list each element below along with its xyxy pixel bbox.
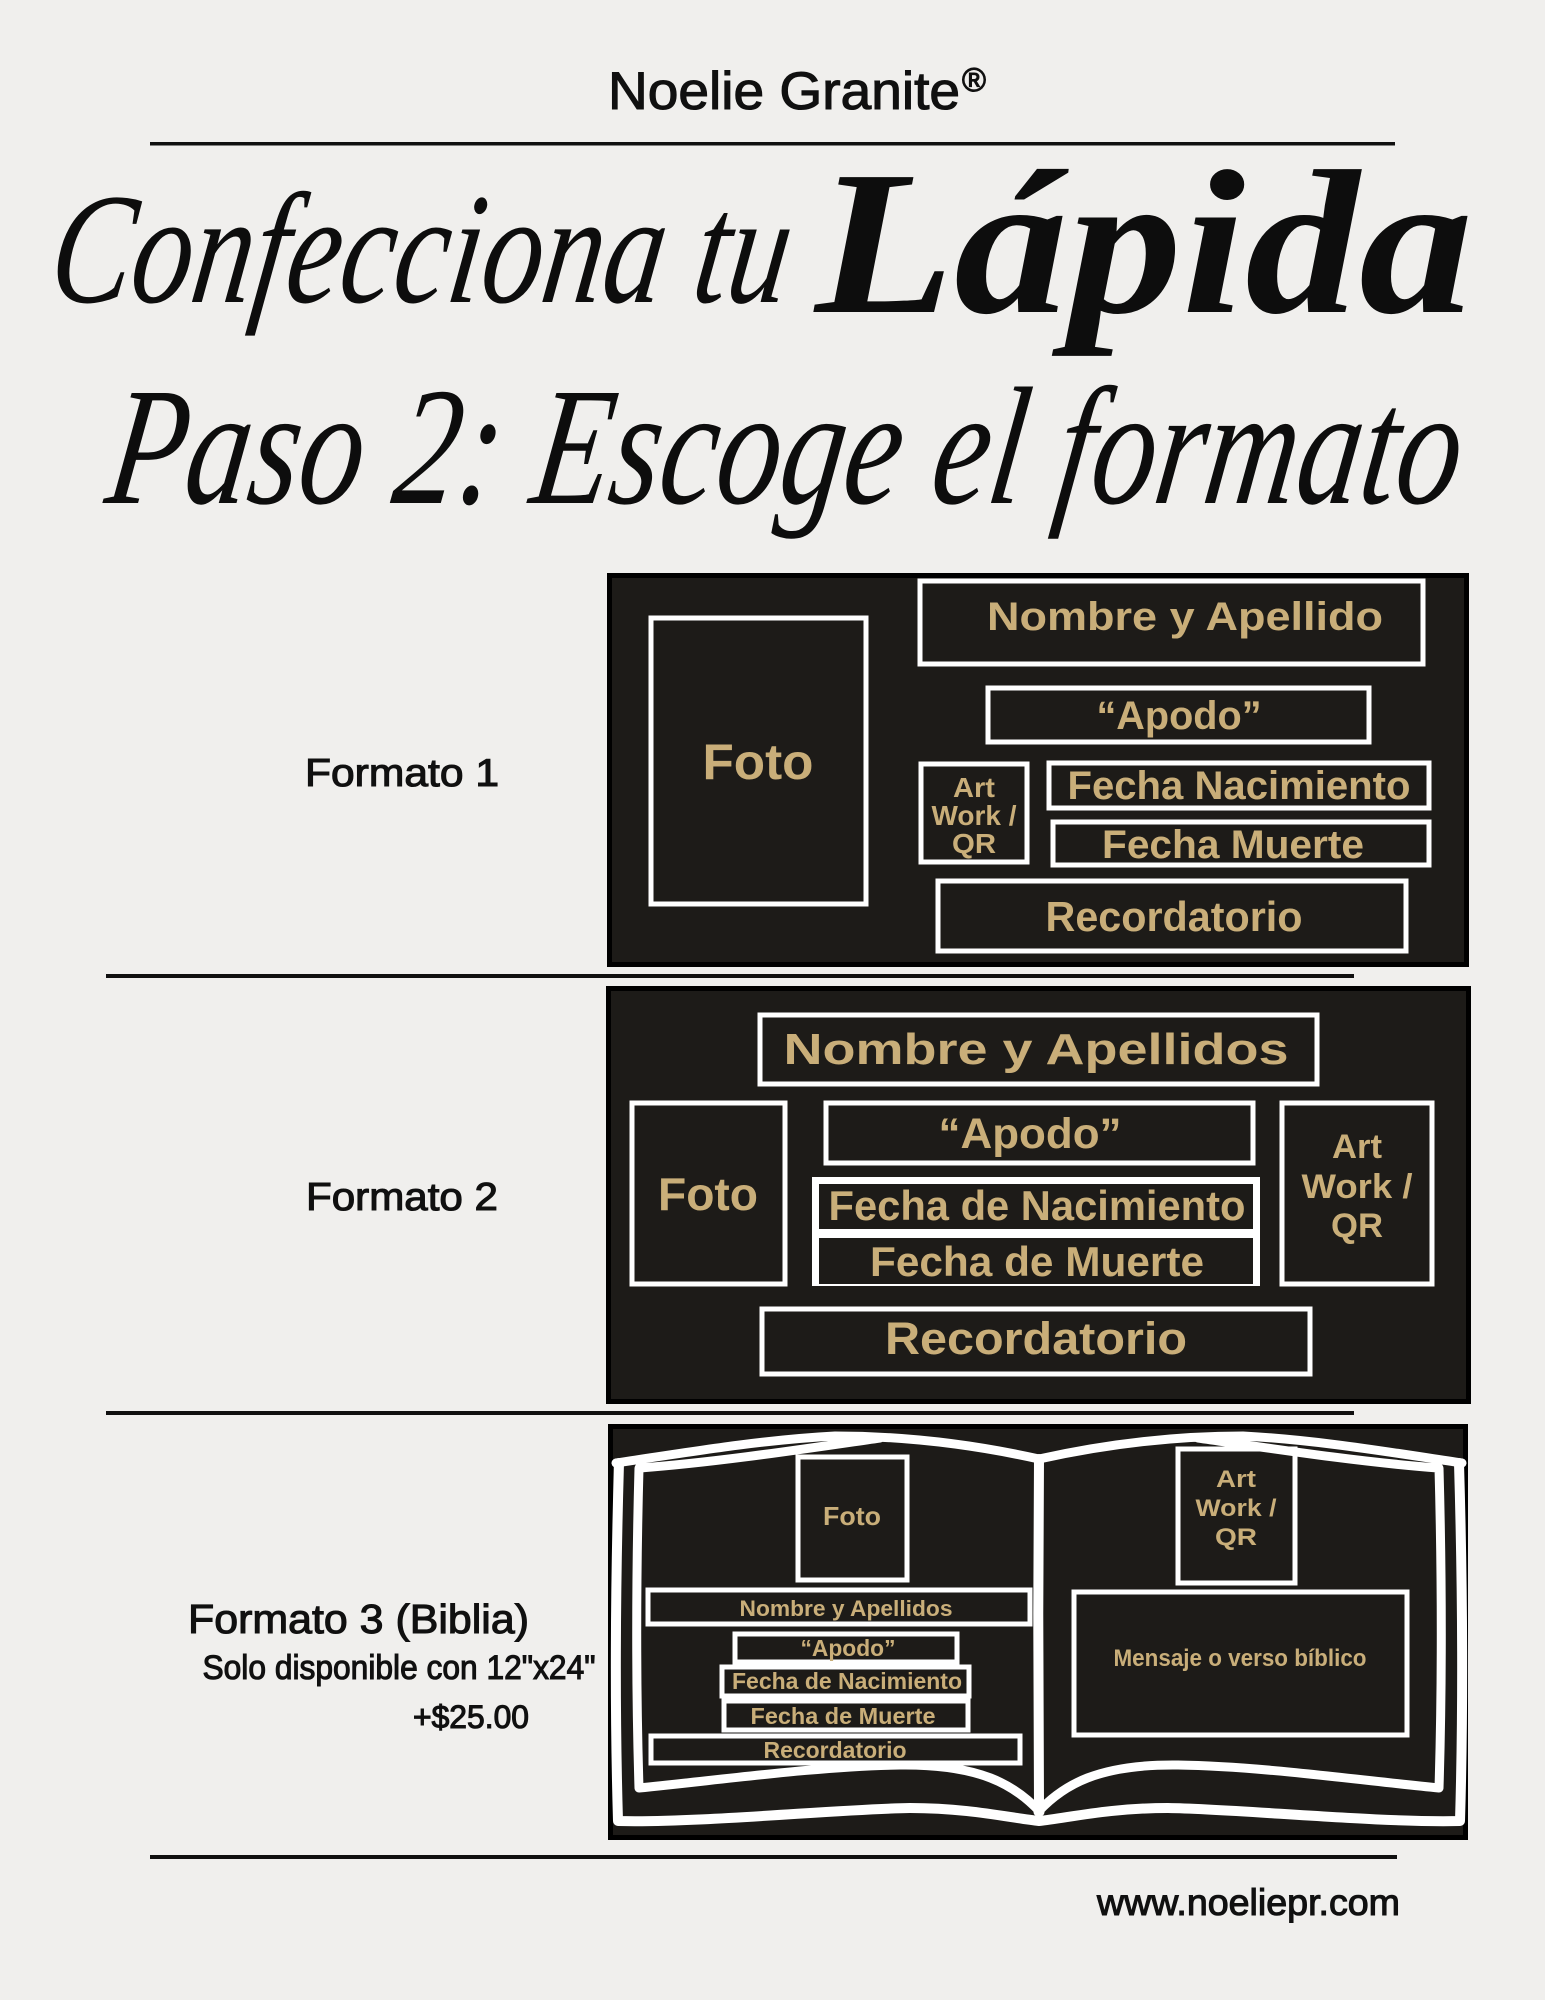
svg-text:Fecha Muerte: Fecha Muerte (1102, 823, 1364, 867)
svg-text:Nombre y Apellido: Nombre y Apellido (987, 595, 1383, 639)
svg-text:Fecha de Nacimiento: Fecha de Nacimiento (732, 1668, 962, 1694)
svg-text:Paso 2: Escoge el formato: Paso 2: Escoge el formato (97, 354, 1476, 540)
svg-text:Work /: Work / (932, 800, 1017, 831)
svg-text:QR: QR (1331, 1207, 1383, 1245)
svg-text:Formato 3 (Biblia): Formato 3 (Biblia) (188, 1596, 529, 1642)
svg-text:Foto: Foto (658, 1168, 758, 1220)
svg-text:Fecha de Muerte: Fecha de Muerte (751, 1703, 936, 1729)
svg-text:Lápida: Lápida (813, 128, 1473, 357)
svg-text:Recordatorio: Recordatorio (764, 1737, 907, 1763)
svg-text:+$25.00: +$25.00 (413, 1699, 529, 1735)
svg-text:“Apodo”: “Apodo” (1097, 694, 1262, 738)
svg-text:QR: QR (952, 828, 996, 859)
svg-text:Fecha Nacimiento: Fecha Nacimiento (1068, 764, 1411, 808)
svg-text:Work /: Work / (1196, 1495, 1277, 1522)
svg-text:Fecha de Muerte: Fecha de Muerte (870, 1238, 1204, 1285)
svg-text:“Apodo”: “Apodo” (939, 1110, 1122, 1158)
svg-text:Foto: Foto (823, 1501, 881, 1531)
svg-text:Recordatorio: Recordatorio (1046, 893, 1303, 940)
svg-text:Art: Art (953, 772, 995, 803)
svg-text:®: ® (962, 61, 986, 98)
svg-text:QR: QR (1215, 1524, 1257, 1551)
svg-text:Confecciona tu: Confecciona tu (41, 163, 803, 337)
svg-text:Fecha de Nacimiento: Fecha de Nacimiento (829, 1182, 1246, 1229)
svg-text:Art: Art (1332, 1128, 1382, 1166)
svg-text:Art: Art (1216, 1466, 1256, 1493)
svg-text:Noelie Granite: Noelie Granite (608, 62, 960, 121)
svg-text:Solo disponible con 12"x24": Solo disponible con 12"x24" (203, 1649, 596, 1687)
svg-text:Formato 1: Formato 1 (305, 752, 499, 795)
svg-text:Foto: Foto (703, 734, 814, 790)
svg-text:Formato 2: Formato 2 (306, 1176, 498, 1219)
svg-text:Mensaje o verso bíblico: Mensaje o verso bíblico (1114, 1645, 1367, 1672)
svg-text:www.noeliepr.com: www.noeliepr.com (1096, 1882, 1400, 1923)
svg-text:“Apodo”: “Apodo” (801, 1635, 896, 1661)
svg-text:Recordatorio: Recordatorio (885, 1313, 1187, 1364)
svg-text:Nombre y Apellidos: Nombre y Apellidos (784, 1025, 1289, 1074)
svg-text:Work /: Work / (1302, 1168, 1414, 1206)
svg-text:Nombre y Apellidos: Nombre y Apellidos (740, 1596, 953, 1621)
